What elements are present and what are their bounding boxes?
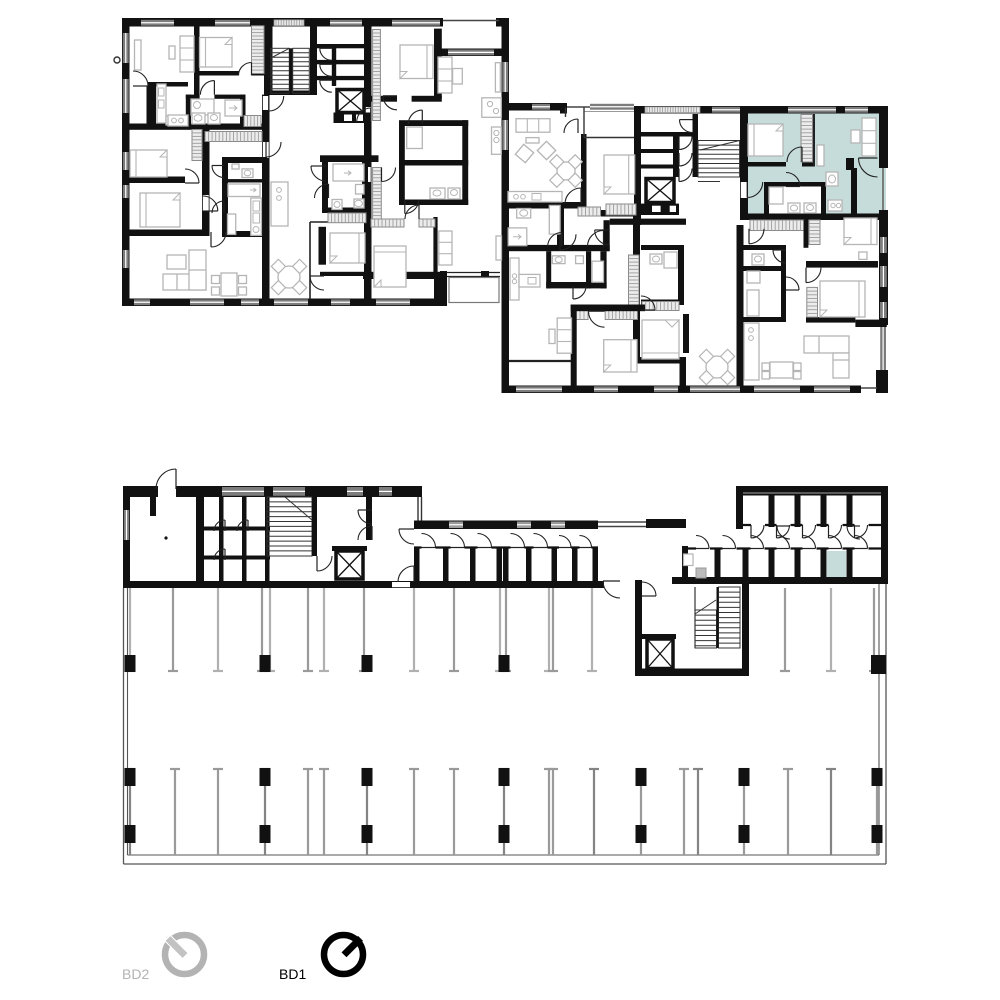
svg-text:BD2: BD2 bbox=[122, 966, 149, 982]
svg-text:BD1: BD1 bbox=[279, 966, 306, 982]
